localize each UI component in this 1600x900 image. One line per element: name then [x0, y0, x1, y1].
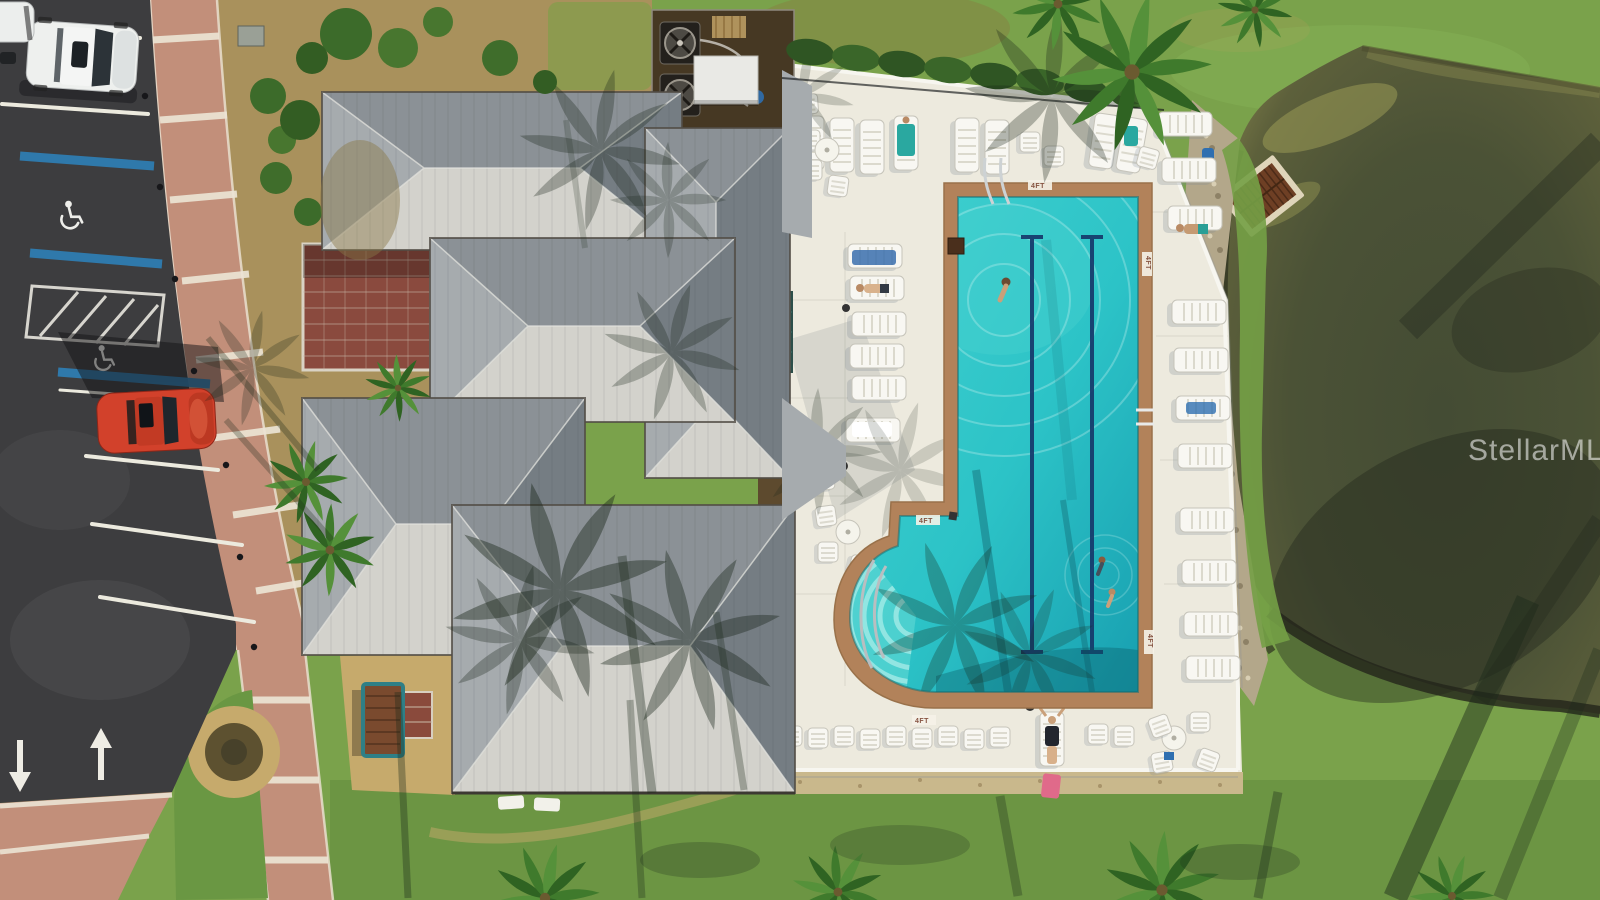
svg-text:4FT: 4FT: [1144, 256, 1151, 270]
roof-wing-center: [430, 238, 735, 422]
white-table: [534, 797, 561, 811]
watermark: StellarMLS: [1468, 434, 1600, 467]
svg-text:4FT: 4FT: [919, 518, 933, 525]
east-eave: [782, 70, 812, 238]
white-suv: [19, 16, 142, 104]
blue-towel: [852, 250, 896, 265]
flat-roof-shed: [694, 56, 758, 104]
sunbather-head: [856, 284, 864, 292]
svg-text:4FT: 4FT: [915, 718, 929, 725]
drain-mat: [948, 238, 964, 254]
corner-marker: [948, 511, 957, 520]
person-head: [903, 117, 910, 124]
red-car: [96, 388, 217, 454]
svg-text:4FT: 4FT: [1146, 634, 1153, 648]
pink-towel: [1041, 773, 1061, 799]
depth-marking-text: 4FT: [1031, 183, 1045, 190]
lounge-chairs-west: [842, 244, 906, 403]
lounge-chairs-top: [795, 112, 1160, 177]
pond: [1183, 46, 1600, 759]
blue-item: [1164, 752, 1174, 760]
aerial-photo: 4FT 4FT 4FT 4FT 4FT: [0, 0, 1600, 900]
aerial-photo-stage: 4FT 4FT 4FT 4FT 4FT: [0, 0, 1600, 900]
utility-box: [238, 26, 264, 46]
brick-courtyard: [303, 244, 431, 370]
teal-towel: [897, 124, 915, 156]
gravel-strip: [757, 772, 1243, 794]
sunbather-head: [1176, 224, 1184, 232]
white-table: [498, 795, 525, 810]
